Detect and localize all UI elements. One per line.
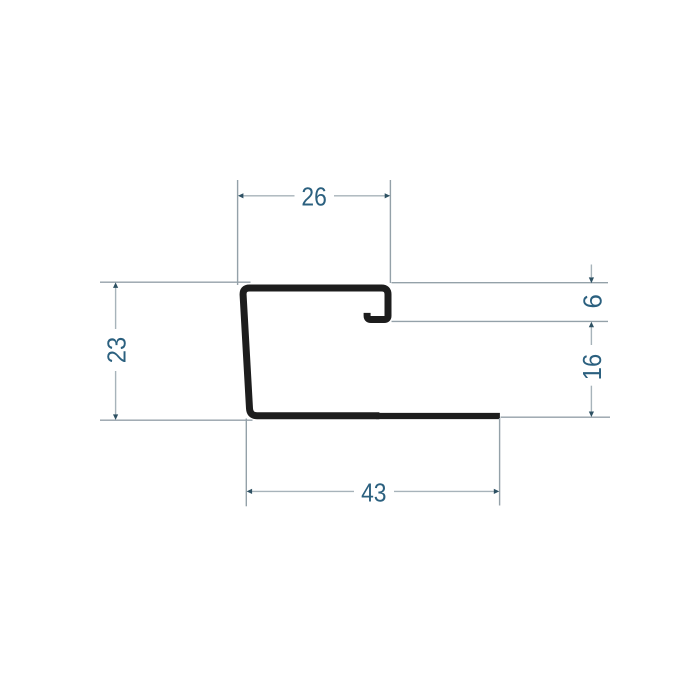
svg-text:43: 43 <box>361 479 386 507</box>
svg-text:23: 23 <box>104 337 132 363</box>
svg-text:6: 6 <box>579 294 607 308</box>
svg-text:16: 16 <box>579 354 607 380</box>
svg-text:26: 26 <box>301 183 326 211</box>
